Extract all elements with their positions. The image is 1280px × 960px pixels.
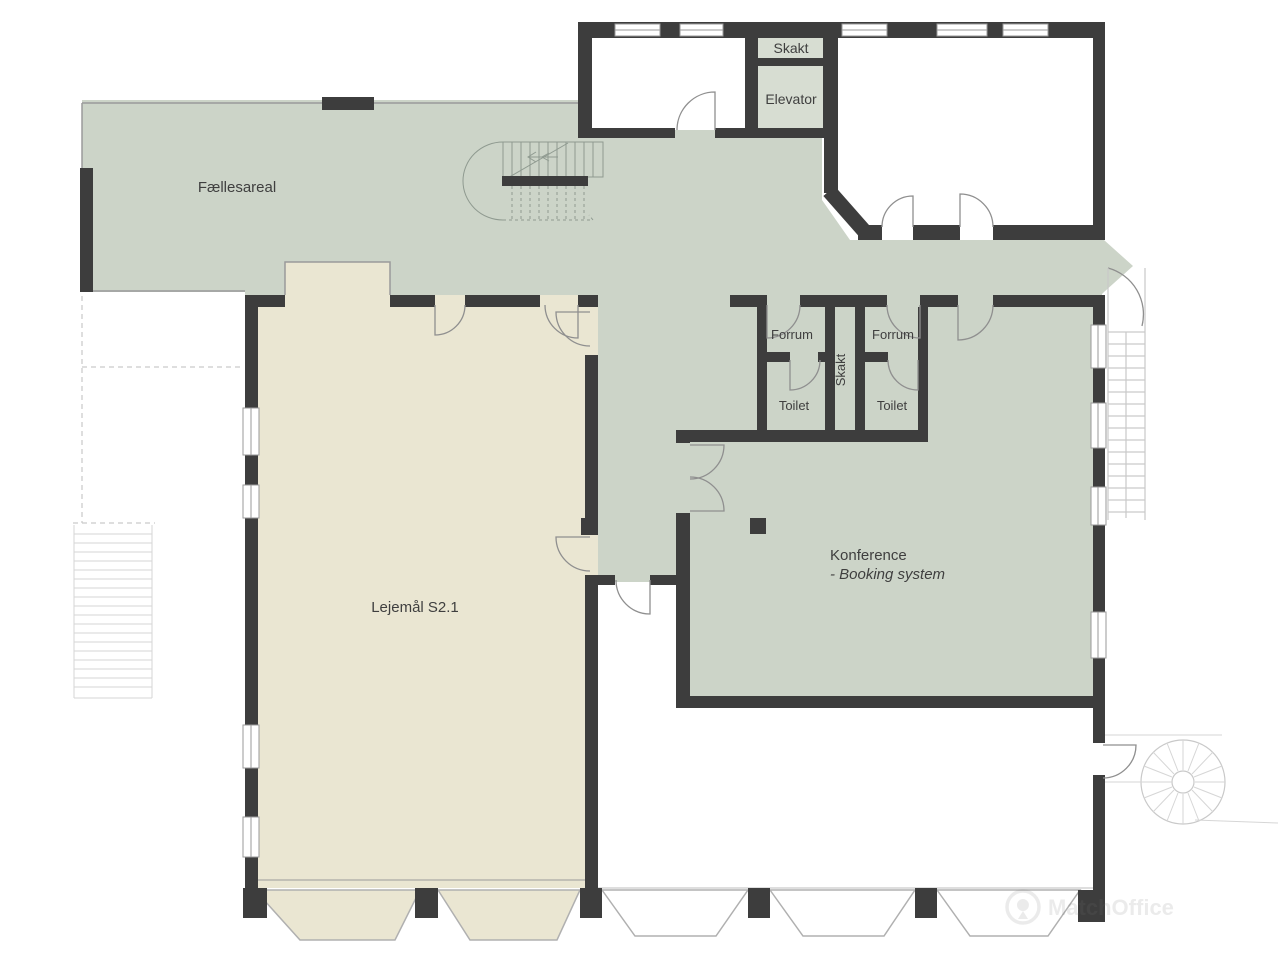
label-lejemaal: Lejemål S2.1 [371, 599, 459, 616]
label-skakt-top: Skakt [773, 40, 808, 56]
label-forrum-left: Forrum [771, 327, 813, 342]
floor-plan-drawing: Fællesareal Skakt Elevator Forrum Forrum… [0, 0, 1280, 960]
exterior-stair-bottom-left [74, 525, 152, 698]
label-elevator: Elevator [765, 91, 817, 107]
spiral-stair [1105, 735, 1278, 824]
label-konference-sub: - Booking system [830, 566, 945, 583]
label-konference: Konference [830, 547, 907, 564]
column [750, 518, 766, 534]
stair-landing [502, 176, 588, 186]
exterior-stair-right [1108, 268, 1145, 520]
bay-windows [255, 890, 1080, 940]
floor-plan-page: Fællesareal Skakt Elevator Forrum Forrum… [0, 0, 1280, 960]
label-toilet-left: Toilet [779, 398, 810, 413]
label-faellesareal: Fællesareal [198, 179, 276, 196]
room-lejemaal [245, 262, 598, 888]
label-toilet-right: Toilet [877, 398, 908, 413]
label-skakt-mid: Skakt [833, 353, 848, 386]
watermark-text: MatchOffice [1048, 895, 1174, 920]
label-forrum-right: Forrum [872, 327, 914, 342]
exterior-terrace-outline [73, 296, 242, 523]
